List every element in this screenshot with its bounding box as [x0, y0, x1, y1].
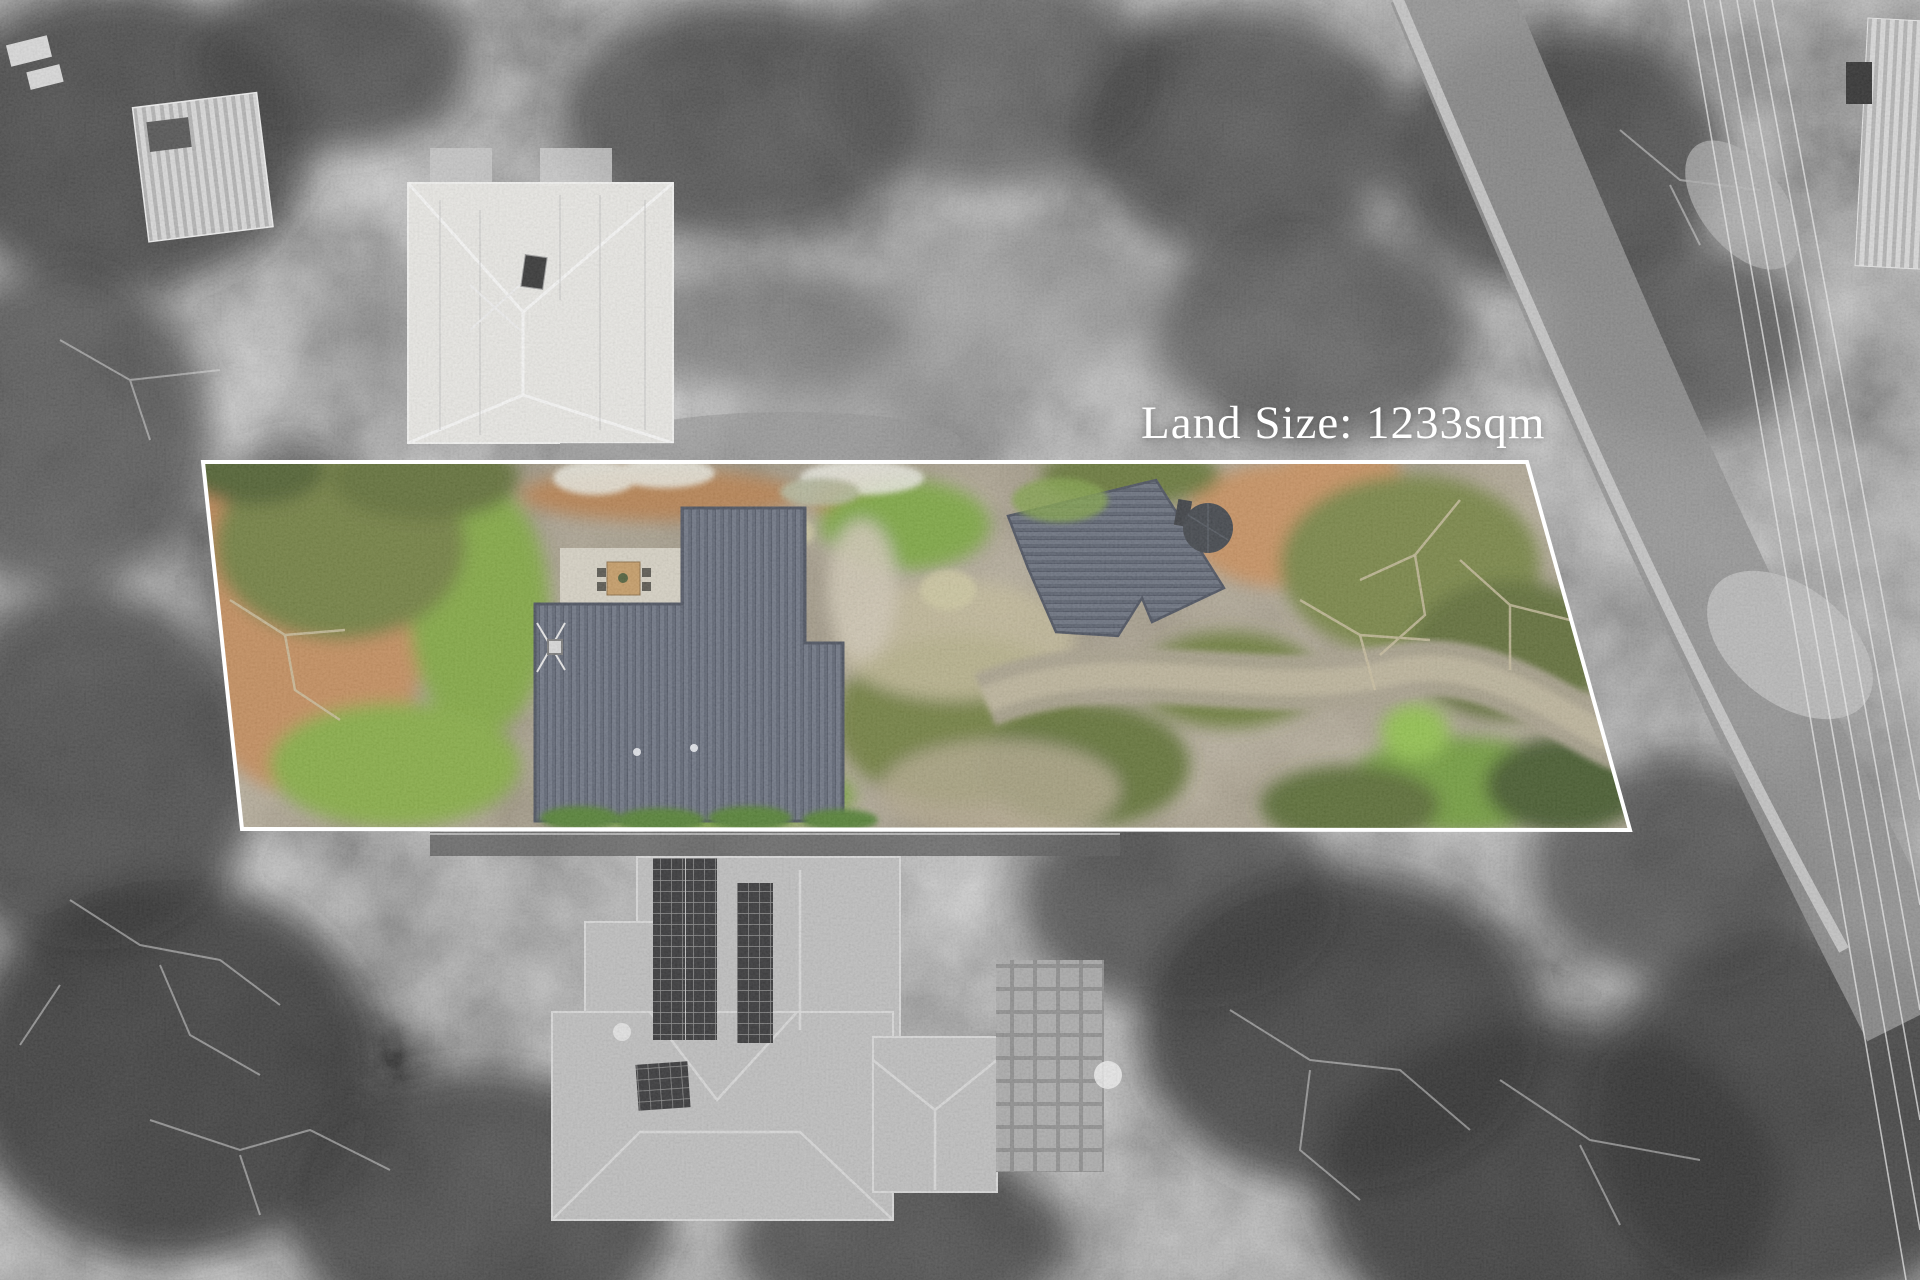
aerial-photo: Land Size: 1233sqm [0, 0, 1920, 1280]
aerial-photo-canvas [0, 0, 1920, 1280]
land-size-label: Land Size: 1233sqm [1141, 396, 1545, 450]
photo-grain [0, 0, 1920, 1280]
